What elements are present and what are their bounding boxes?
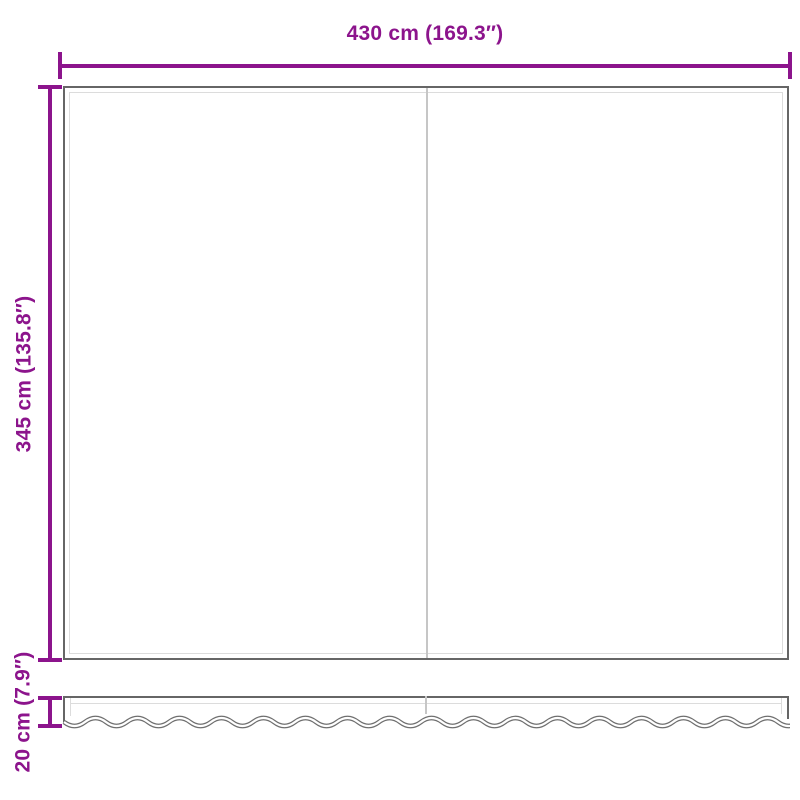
valance-strip bbox=[63, 696, 789, 742]
height-dimension-bottom-cap bbox=[38, 658, 62, 662]
dimension-diagram: 430 cm (169.3″) 345 cm (135.8″) 20 cm (7… bbox=[0, 0, 800, 800]
valance-height-dimension-label: 20 cm (7.9″) bbox=[12, 651, 36, 772]
height-dimension-label-wrap: 345 cm (135.8″) bbox=[0, 87, 48, 661]
valance-height-dimension-top-cap bbox=[38, 696, 62, 700]
height-dimension-label: 345 cm (135.8″) bbox=[12, 296, 36, 453]
height-dimension-line bbox=[48, 87, 52, 661]
fabric-panel bbox=[63, 86, 789, 660]
valance-height-dimension-label-wrap: 20 cm (7.9″) bbox=[0, 697, 48, 727]
height-dimension-top-cap bbox=[38, 85, 62, 89]
width-dimension-left-cap bbox=[58, 52, 62, 79]
width-dimension-label: 430 cm (169.3″) bbox=[60, 22, 790, 46]
fabric-panel-center-seam bbox=[426, 88, 428, 658]
valance-height-dimension-line bbox=[48, 697, 52, 727]
width-dimension-right-cap bbox=[788, 52, 792, 79]
valance-height-dimension-bottom-cap bbox=[38, 724, 62, 728]
valance-wave bbox=[62, 709, 790, 739]
width-dimension-line bbox=[60, 64, 790, 68]
